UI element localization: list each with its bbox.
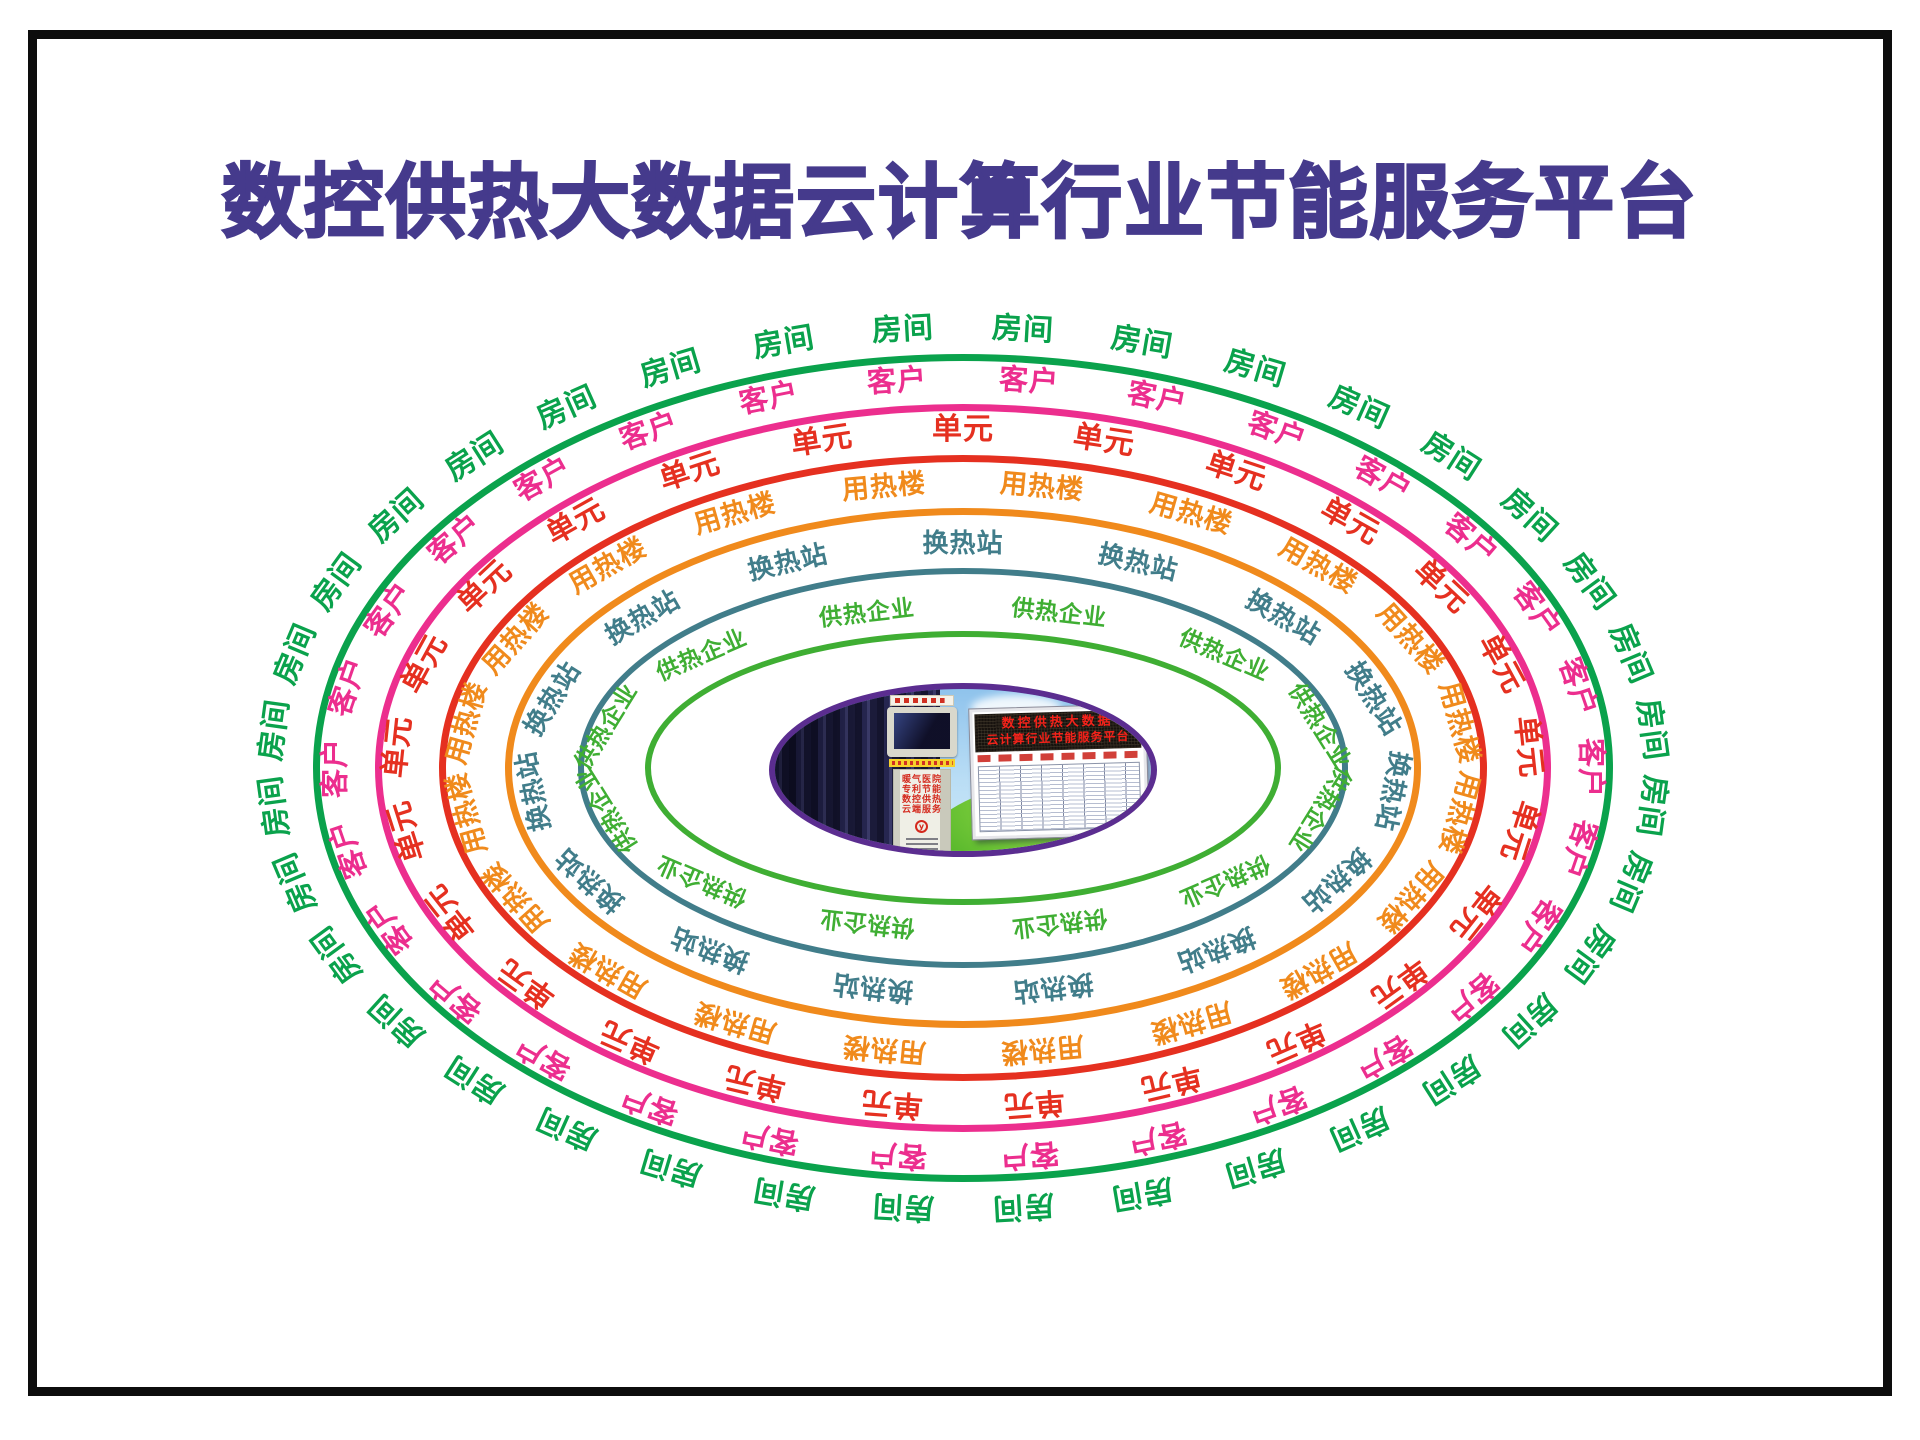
ring-label-0: 房间 xyxy=(1417,428,1485,487)
ring-label-0: 房间 xyxy=(440,1050,508,1109)
ring-label-0: 房间 xyxy=(1109,323,1175,363)
ring-label-0: 房间 xyxy=(751,323,817,363)
ring-label-0: 房间 xyxy=(1604,847,1656,916)
ring-label-0: 房间 xyxy=(1559,548,1620,616)
ring-label-0: 房间 xyxy=(1604,620,1656,689)
ring-label-3: 用热楼 xyxy=(841,1032,927,1066)
kiosk-brand-sign xyxy=(890,695,954,706)
ring-label-1: 客户 xyxy=(998,365,1060,398)
ring-label-0: 房间 xyxy=(1325,1102,1394,1155)
ring-label-0: 房间 xyxy=(1109,1173,1175,1213)
ring-label-1: 客户 xyxy=(320,738,349,798)
ring-label-0: 房间 xyxy=(991,313,1055,346)
ring-label-2: 单元 xyxy=(380,714,416,779)
table-grid xyxy=(978,762,1142,832)
ring-label-1: 客户 xyxy=(998,1138,1060,1171)
ring-label-0: 房间 xyxy=(991,1190,1055,1223)
data-table-panel: 数控供热大数据 云计算行业节能服务平台 xyxy=(969,705,1149,840)
kiosk-screen xyxy=(887,707,957,757)
ring-label-0: 房间 xyxy=(871,313,935,346)
kiosk-slogan-text: 暖气医院专利节能数控供热云端服务 xyxy=(894,775,950,815)
ring-label-3: 用热楼 xyxy=(841,469,927,503)
ring-label-3: 用热楼 xyxy=(998,1032,1084,1066)
ring-label-0: 房间 xyxy=(1632,774,1670,840)
ring-label-0: 房间 xyxy=(306,548,367,616)
ring-label-0: 房间 xyxy=(532,1102,601,1155)
ring-label-1: 客户 xyxy=(866,1138,928,1171)
ring-label-0: 房间 xyxy=(751,1173,817,1213)
ring-label-0: 房间 xyxy=(1417,1050,1485,1109)
led-header-line2: 云计算行业节能服务平台 xyxy=(975,729,1141,749)
ring-label-0: 房间 xyxy=(1632,697,1670,763)
ring-label-0: 房间 xyxy=(270,620,322,689)
ring-label-0: 房间 xyxy=(637,1144,705,1190)
ring-label-0: 房间 xyxy=(1559,920,1620,988)
ring-label-0: 房间 xyxy=(256,774,294,840)
ring-label-0: 房间 xyxy=(270,847,322,916)
led-header: 数控供热大数据 云计算行业节能服务平台 xyxy=(974,710,1141,753)
kiosk-fineprint xyxy=(906,838,938,851)
kiosk-label-strip xyxy=(889,759,955,767)
ring-label-2: 单元 xyxy=(1071,421,1137,460)
ring-label-0: 房间 xyxy=(364,988,430,1052)
ring-label-4: 换热站 xyxy=(922,531,1003,557)
ring-label-1: 客户 xyxy=(866,365,928,398)
ring-label-2: 单元 xyxy=(860,1086,924,1121)
ring-label-0: 房间 xyxy=(637,346,705,392)
kiosk-slogan-line: 云端服务 xyxy=(894,805,950,815)
heating-kiosk: 暖气医院专利节能数控供热云端服务 y xyxy=(883,695,961,853)
ring-label-0: 房间 xyxy=(1496,484,1562,548)
kiosk-screen-glass xyxy=(894,713,950,749)
ring-label-0: 房间 xyxy=(532,381,601,434)
kiosk-body: 暖气医院专利节能数控供热云端服务 y xyxy=(893,769,951,853)
ring-label-2: 单元 xyxy=(1510,714,1546,779)
ring-label-2: 单元 xyxy=(932,415,994,445)
ring-label-2: 单元 xyxy=(789,421,855,460)
ring-label-3: 用热楼 xyxy=(998,469,1084,503)
ring-label-0: 房间 xyxy=(1496,988,1562,1052)
kiosk-slogan-line: 数控供热 xyxy=(894,795,950,805)
ring-label-2: 单元 xyxy=(1002,1086,1066,1121)
ring-label-1: 客户 xyxy=(1577,738,1606,798)
kiosk-emblem-icon: y xyxy=(915,820,928,833)
center-photo-oval: 暖气医院专利节能数控供热云端服务 y 数控供热大数据 云计算行业节能服务平台 xyxy=(769,683,1157,857)
kiosk-slogan-line: 暖气医院 xyxy=(894,775,950,785)
ring-label-0: 房间 xyxy=(364,484,430,548)
ring-label-0: 房间 xyxy=(1325,381,1394,434)
ring-label-0: 房间 xyxy=(256,697,294,763)
kiosk-slogan-line: 专利节能 xyxy=(894,785,950,795)
ring-label-0: 房间 xyxy=(1221,346,1289,392)
ring-label-0: 房间 xyxy=(306,920,367,988)
ring-label-0: 房间 xyxy=(1221,1144,1289,1190)
ring-label-0: 房间 xyxy=(871,1190,935,1223)
